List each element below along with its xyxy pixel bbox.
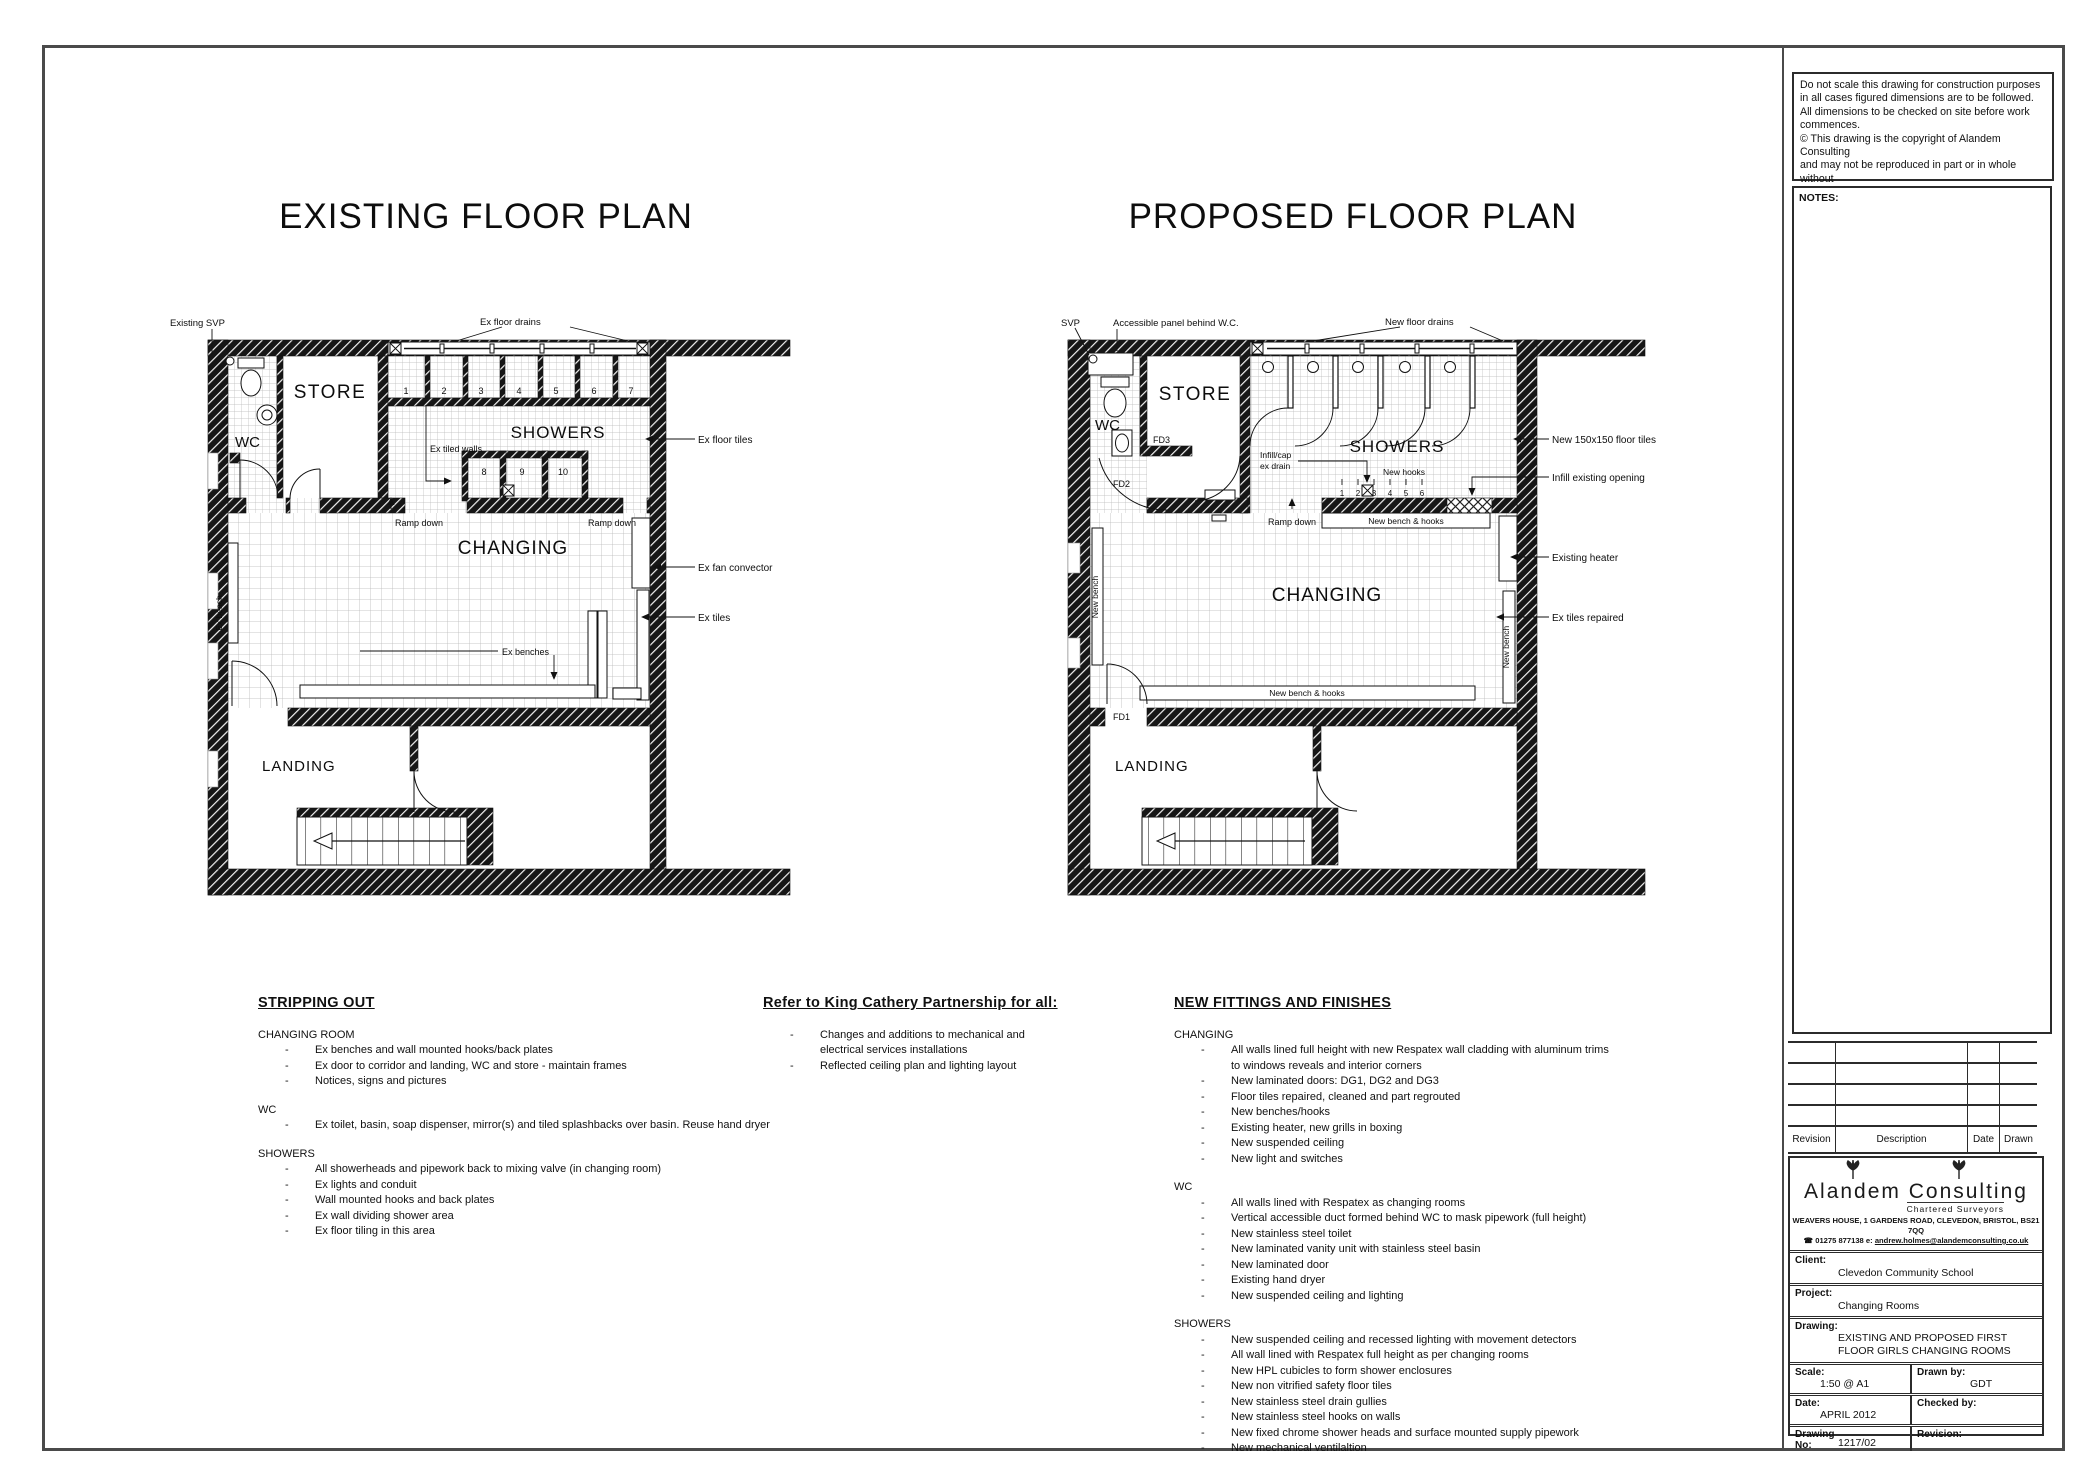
hook-number: 4 [1388, 489, 1393, 498]
cubicle-number: 3 [478, 386, 483, 396]
existing-plan-title: EXISTING FLOOR PLAN [226, 197, 746, 237]
company-phone: 01275 877138 [1815, 1236, 1864, 1245]
label-infill-cap-1: Infill/cap [1260, 450, 1291, 460]
hook-number: 1 [1340, 489, 1345, 498]
company-name: Alandem Consulting [1790, 1180, 2042, 1204]
date-row: Date: APRIL 2012 Checked by: [1790, 1393, 2042, 1424]
drawn-by-value: GDT [1912, 1378, 2042, 1393]
email-prefix: e: [1866, 1236, 1873, 1245]
spec-item: Ex wall dividing shower area [258, 1209, 803, 1225]
toilet-bowl [1104, 389, 1126, 417]
panel-divider-line [1782, 45, 1784, 1448]
room-label-store: STORE [1159, 384, 1232, 405]
scale-row: Scale: 1:50 @ A1 Drawn by: GDT [1790, 1362, 2042, 1393]
hook-number: 5 [1404, 489, 1409, 498]
revision-row [1788, 1062, 2037, 1083]
revision-header-row: Revision Description Date Drawn [1788, 1125, 2037, 1154]
spec-item: Wall mounted hooks and back plates [258, 1193, 803, 1209]
checked-by-value [1912, 1409, 2042, 1412]
cubicle-number: 6 [591, 386, 596, 396]
cubicle-number: 7 [628, 386, 633, 396]
spec-item: New suspended ceiling and recessed light… [1174, 1333, 1619, 1349]
revision-col-header: Revision [1788, 1127, 1836, 1152]
svp-pipe [1089, 355, 1097, 363]
spec-item: New non vitrified safety floor tiles [1174, 1379, 1619, 1395]
cubicle-number: 2 [441, 386, 446, 396]
group-heading: CHANGING ROOM [258, 1028, 803, 1044]
label-infill-cap-2: ex drain [1260, 461, 1291, 471]
label-ex-tiles: Ex tiles [698, 613, 730, 624]
label-existing-svp: Existing SVP [170, 318, 225, 329]
scale-label: Scale: [1790, 1365, 1910, 1378]
cubicle-number: 9 [519, 467, 524, 477]
shower-head [1400, 362, 1411, 373]
room-label-changing: CHANGING [458, 538, 568, 559]
company-tagline: Chartered Surveyors [1907, 1202, 2004, 1214]
logo-leaf-icon [1948, 1160, 1970, 1180]
drawn-col-header: Drawn [2000, 1127, 2037, 1152]
spec-item: New laminated door [1174, 1258, 1619, 1274]
date-label: Date: [1790, 1396, 1910, 1409]
bench-small [613, 688, 641, 699]
drawing-no-row: Drawing No: 1217/02 Revision: [1790, 1424, 2042, 1451]
revision-row [1788, 1041, 2037, 1062]
spec-item: Ex floor tiling in this area [258, 1224, 803, 1240]
scale-value: 1:50 @ A1 [1790, 1378, 1910, 1393]
room-label-showers: SHOWERS [1350, 437, 1445, 456]
shower-head [1308, 362, 1319, 373]
label-fd3: FD3 [1153, 435, 1170, 445]
bench-long [300, 685, 595, 698]
infill-existing-opening [1447, 498, 1492, 513]
label-svp: SVP [1061, 318, 1080, 329]
revision-row [1788, 1083, 2037, 1104]
project-label: Project: [1790, 1286, 2042, 1299]
room-label-store: STORE [294, 382, 367, 403]
toilet-cistern [1101, 377, 1129, 387]
phone-icon: ☎ [1804, 1236, 1813, 1245]
spec-item: New light and switches [1174, 1152, 1619, 1168]
hook-number: 3 [1372, 489, 1377, 498]
copyright-notice: Do not scale this drawing for constructi… [1792, 72, 2054, 181]
shower-head [1353, 362, 1364, 373]
shower-head [1263, 362, 1274, 373]
spec-item: All showerheads and pipework back to mix… [258, 1162, 803, 1178]
revision-label: Revision: [1912, 1427, 2042, 1440]
client-row: Client: Clevedon Community School [1790, 1250, 2042, 1283]
drawing-value: EXISTING AND PROPOSED FIRST FLOOR GIRLS … [1790, 1332, 2042, 1362]
spec-item: New suspended ceiling and lighting [1174, 1289, 1619, 1305]
drawing-sheet: { "page": { "existing_title": "EXISTING … [0, 0, 2100, 1484]
label-ex-benches: Ex benches [502, 647, 550, 657]
spec-item: New fixed chrome shower heads and surfac… [1174, 1426, 1619, 1442]
bench-double-2 [598, 611, 607, 698]
company-logo: Alandem Consulting Chartered Surveyors [1790, 1158, 2042, 1216]
title-block: Alandem Consulting Chartered Surveyors W… [1788, 1156, 2044, 1436]
toilet-bowl [241, 370, 261, 396]
stripping-out-title: STRIPPING OUT [258, 996, 803, 1012]
spec-item: Vertical accessible duct formed behind W… [1174, 1211, 1619, 1227]
revision-value [1912, 1440, 2042, 1443]
proposed-floors [1090, 356, 1517, 869]
spec-item: New laminated vanity unit with stainless… [1174, 1242, 1619, 1258]
company-address: WEAVERS HOUSE, 1 GARDENS ROAD, CLEVEDON,… [1790, 1216, 2042, 1236]
logo-leaf-icon [1842, 1160, 1864, 1180]
spec-item: All walls lined with Respatex as changin… [1174, 1196, 1619, 1212]
spec-item: New HPL cubicles to form shower enclosur… [1174, 1364, 1619, 1380]
date-value: APRIL 2012 [1790, 1409, 1910, 1424]
spec-item: Existing heater, new grills in boxing [1174, 1121, 1619, 1137]
checked-by-label: Checked by: [1912, 1396, 2042, 1409]
spec-item: Ex lights and conduit [258, 1178, 803, 1194]
client-value: Clevedon Community School [1790, 1266, 2042, 1283]
date-col-header: Date [1968, 1127, 2000, 1152]
proposed-floor-plan: SVP Accessible panel behind W.C. New flo… [1055, 313, 1725, 905]
group-heading: WC [258, 1103, 803, 1119]
label-ex-floor-tiles: Ex floor tiles [698, 435, 752, 446]
stripping-out-section: STRIPPING OUT CHANGING ROOM Ex benches a… [258, 996, 803, 1240]
cubicle-number: 5 [553, 386, 558, 396]
room-label-landing: LANDING [262, 758, 336, 775]
room-label-wc: WC [235, 434, 260, 451]
notes-label: NOTES: [1794, 188, 2050, 208]
spec-item: Notices, signs and pictures [258, 1074, 803, 1090]
label-ex-floor-drains: Ex floor drains [480, 317, 541, 328]
company-email: andrew.holmes@alandemconsulting.co.uk [1875, 1236, 2029, 1245]
label-ex-bench: Ex bench [214, 595, 224, 631]
company-contact: ☎ 01275 877138 e: andrew.holmes@alandemc… [1790, 1236, 2042, 1246]
spec-item: New suspended ceiling [1174, 1136, 1619, 1152]
new-fittings-section: NEW FITTINGS AND FINISHES CHANGING All w… [1174, 996, 1619, 1457]
spec-item: Ex benches and wall mounted hooks/back p… [258, 1043, 803, 1059]
spec-item: Changes and additions to mechanical and … [763, 1028, 1063, 1059]
store-tap [1212, 515, 1226, 521]
spec-item: New benches/hooks [1174, 1105, 1619, 1121]
svp-pipe [226, 357, 234, 365]
spec-item: New stainless steel hooks on walls [1174, 1410, 1619, 1426]
label-new-bench-left: New bench [1090, 575, 1100, 618]
cubicle-number: 10 [558, 467, 568, 477]
spec-item: New stainless steel drain gullies [1174, 1395, 1619, 1411]
spec-item: Reflected ceiling plan and lighting layo… [763, 1059, 1063, 1075]
label-new-bench-right: New bench [1501, 625, 1511, 668]
label-ex-tiled-walls: Ex tiled walls [430, 444, 483, 454]
label-ramp-down-1: Ramp down [395, 518, 443, 528]
label-new-hooks: New hooks [1383, 467, 1425, 477]
group-heading: WC [1174, 1180, 1619, 1196]
proposed-plan-title: PROPOSED FLOOR PLAN [1093, 197, 1613, 237]
cubicle-number: 8 [481, 467, 486, 477]
new-fittings-title: NEW FITTINGS AND FINISHES [1174, 996, 1619, 1012]
revision-row [1788, 1104, 2037, 1125]
cubicle-number: 1 [403, 386, 408, 396]
bench-right [637, 590, 649, 700]
label-ex-tiles-repaired: Ex tiles repaired [1552, 613, 1624, 624]
notes-box: NOTES: [1792, 186, 2052, 1034]
refer-title: Refer to King Cathery Partnership for al… [763, 996, 1063, 1012]
label-infill-opening: Infill existing opening [1552, 473, 1645, 484]
label-bench-hooks-bottom: New bench & hooks [1269, 688, 1345, 698]
label-bench-hooks-top: New bench & hooks [1368, 516, 1444, 526]
existing-heater [1499, 516, 1517, 581]
spec-item: Ex door to corridor and landing, WC and … [258, 1059, 803, 1075]
label-existing-heater: Existing heater [1552, 553, 1619, 564]
label-ramp-down: Ramp down [1268, 517, 1316, 527]
refer-section: Refer to King Cathery Partnership for al… [763, 996, 1063, 1074]
spec-item: All walls lined full height with new Res… [1174, 1043, 1619, 1074]
revision-table: Revision Description Date Drawn [1788, 1041, 2037, 1154]
room-label-wc: WC [1095, 417, 1120, 434]
project-row: Project: Changing Rooms [1790, 1283, 2042, 1316]
drawing-row: Drawing: EXISTING AND PROPOSED FIRST FLO… [1790, 1316, 2042, 1362]
hook-number: 6 [1420, 489, 1425, 498]
group-heading: SHOWERS [258, 1147, 803, 1163]
spec-item: Floor tiles repaired, cleaned and part r… [1174, 1090, 1619, 1106]
label-new-150-tiles: New 150x150 floor tiles [1552, 435, 1656, 446]
label-fd2: FD2 [1113, 479, 1130, 489]
room-label-landing: LANDING [1115, 758, 1189, 775]
room-label-showers: SHOWERS [511, 423, 606, 442]
drawing-label: Drawing: [1790, 1319, 2042, 1332]
spec-item: All wall lined with Respatex full height… [1174, 1348, 1619, 1364]
fan-convector [632, 518, 650, 588]
group-heading: SHOWERS [1174, 1317, 1619, 1333]
spec-item: New mechanical ventilaltion [1174, 1441, 1619, 1457]
client-label: Client: [1790, 1253, 2042, 1266]
drawn-by-label: Drawn by: [1912, 1365, 2042, 1378]
existing-floor-plan: Existing SVP Ex floor drains STORE WC SH… [150, 313, 850, 905]
room-label-changing: CHANGING [1272, 585, 1382, 606]
spec-item: New laminated doors: DG1, DG2 and DG3 [1174, 1074, 1619, 1090]
cubicle-number: 4 [516, 386, 521, 396]
spec-item: Existing hand dryer [1174, 1273, 1619, 1289]
spec-item: New stainless steel toilet [1174, 1227, 1619, 1243]
drawing-no-value: 1217/02 [1838, 1437, 1876, 1449]
label-access-panel: Accessible panel behind W.C. [1113, 318, 1239, 329]
label-fd1: FD1 [1113, 712, 1130, 722]
description-col-header: Description [1836, 1127, 1968, 1152]
label-ex-fan-convector: Ex fan convector [698, 563, 773, 574]
project-value: Changing Rooms [1790, 1299, 2042, 1316]
bench-left [228, 543, 238, 643]
group-heading: CHANGING [1174, 1028, 1619, 1044]
toilet-cistern [238, 358, 264, 368]
spec-item: Ex toilet, basin, soap dispenser, mirror… [258, 1118, 803, 1134]
hook-number: 2 [1356, 489, 1361, 498]
shower-head [1445, 362, 1456, 373]
label-new-floor-drains: New floor drains [1385, 317, 1454, 328]
label-ramp-down-2: Ramp down [588, 518, 636, 528]
